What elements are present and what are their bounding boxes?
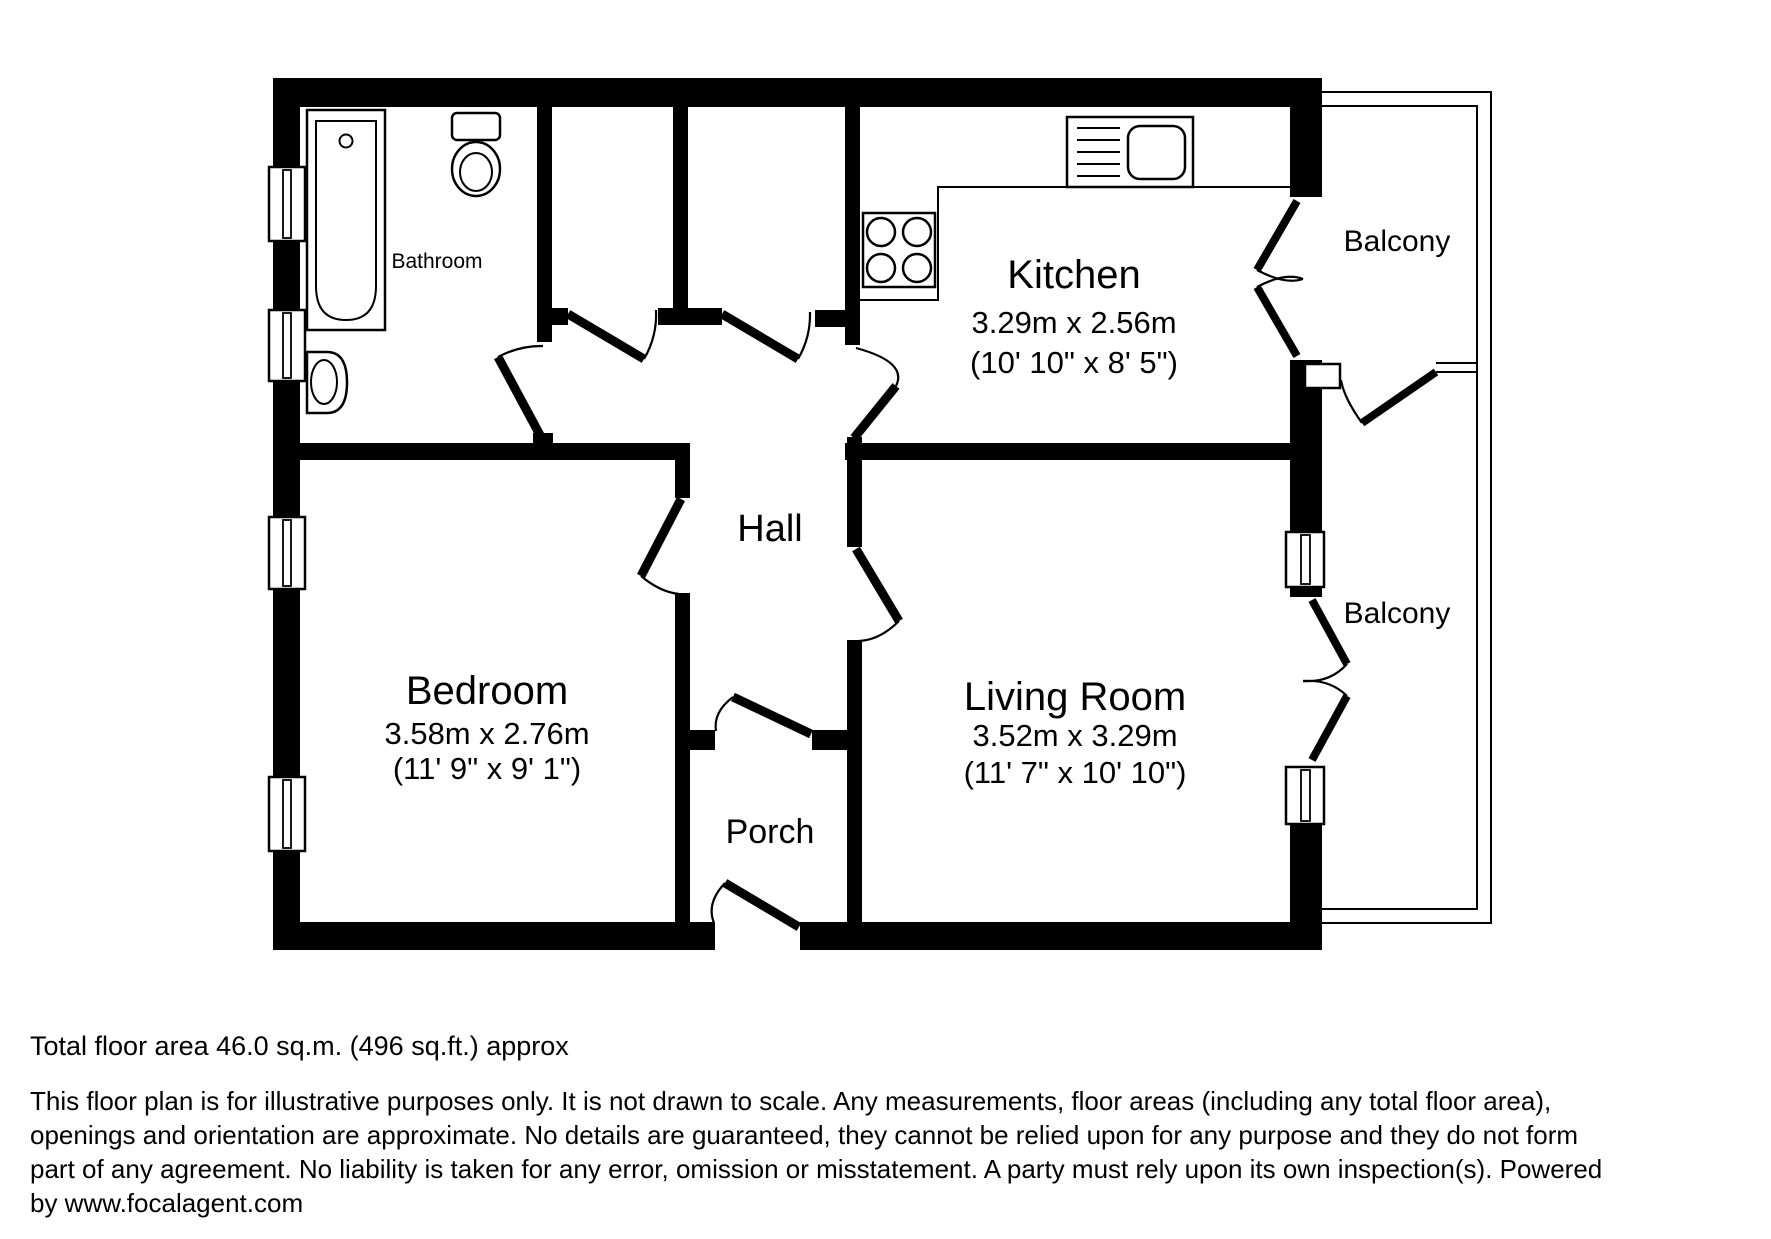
porch-entrance-door-arc	[712, 883, 725, 923]
bathroom-door-arc	[498, 346, 543, 357]
living-room-door-leaf	[856, 549, 899, 621]
window-icon	[1286, 767, 1324, 824]
door-swing-icon	[722, 312, 810, 359]
wall-bathroom-right-stub	[552, 308, 568, 325]
total-floor-area: Total floor area 46.0 sq.m. (496 sq.ft.)…	[30, 1031, 569, 1061]
kitchen-dims-imperial: (10' 10" x 8' 5")	[970, 345, 1178, 380]
balcony-divider-door-arc	[1341, 380, 1362, 423]
kitchen-balcony-door-leaf1	[1257, 201, 1297, 270]
bathroom-label: Bathroom	[391, 250, 482, 273]
bathtub-icon	[307, 110, 385, 330]
wall-closet-divider-stub	[658, 308, 722, 325]
bathroom-door-leaf	[498, 357, 540, 435]
living-room-door-arc	[859, 621, 899, 641]
closet2-door-leaf	[722, 314, 798, 359]
wall-closet-divider	[673, 107, 688, 308]
wall-hall-living-lower	[847, 640, 862, 922]
hall-porch-door-arc	[716, 697, 733, 731]
bedroom-dims-metric: 3.58m x 2.76m	[384, 716, 589, 751]
wall-outer-bottom-left	[273, 922, 715, 950]
disclaimer-line-3: part of any agreement. No liability is t…	[30, 1154, 1602, 1184]
door-swing-icon	[641, 499, 681, 594]
wall-kitchen-left	[845, 107, 860, 345]
door-swing-icon	[712, 883, 799, 927]
living-balcony-door-arc2	[1303, 681, 1347, 696]
kitchen-sink-icon	[1067, 117, 1193, 187]
french-door-icon	[1257, 201, 1303, 356]
window-icon	[269, 777, 305, 851]
hob-icon	[863, 213, 935, 287]
balcony-middle-label: Balcony	[1344, 597, 1451, 630]
wall-porch-top-left-stub	[690, 730, 715, 750]
wall-kitchen-left-stub	[815, 310, 845, 327]
kitchen-balcony-door-arc2	[1257, 277, 1303, 287]
door-swing-icon	[854, 348, 898, 438]
living-balcony-door-leaf1	[1312, 600, 1347, 664]
balcony-top-label: Balcony	[1344, 225, 1451, 258]
disclaimer-line-1: This floor plan is for illustrative purp…	[30, 1086, 1551, 1116]
basin-icon	[307, 352, 347, 413]
bedroom-label: Bedroom	[406, 669, 568, 713]
balcony-parapet-outer	[1322, 92, 1491, 923]
wall-porch-top-right-stub	[812, 730, 847, 750]
door-swing-icon	[716, 697, 811, 734]
wall-bathroom-right	[537, 107, 552, 342]
doors	[498, 201, 1347, 927]
hall-label: Hall	[737, 508, 802, 550]
disclaimer-line-4: by www.focalagent.com	[30, 1188, 303, 1218]
bedroom-door-leaf	[641, 499, 681, 576]
door-swing-icon	[498, 346, 543, 435]
hall-porch-door-leaf	[733, 697, 811, 734]
floorplan: Bathroom Kitchen 3.29m x 2.56m (10' 10" …	[0, 0, 1771, 1239]
wall-right-seg3	[1290, 587, 1322, 597]
closet1-door-arc	[644, 310, 656, 359]
wall-bedroom-right-upper-stub	[675, 460, 690, 498]
wall-outer-bottom-right	[800, 922, 1322, 950]
footer: Total floor area 46.0 sq.m. (496 sq.ft.)…	[30, 1031, 1602, 1218]
window-icon	[1286, 532, 1324, 587]
wall-bathroom-bedroom-divider	[300, 443, 690, 460]
porch-label: Porch	[726, 813, 815, 851]
wall-outer-top	[273, 78, 1322, 107]
window-icon	[269, 517, 305, 589]
door-swing-icon	[856, 549, 899, 641]
bedroom-door-arc	[641, 576, 679, 594]
porch-entrance-door-leaf	[725, 883, 799, 927]
balcony-parapet	[1305, 92, 1491, 923]
balcony-divider-door-leaf	[1362, 372, 1436, 423]
french-door-icon	[1303, 600, 1347, 760]
wall-bedroom-right-lower	[675, 593, 690, 922]
kitchen-balcony-door-leaf2	[1257, 287, 1297, 356]
disclaimer-line-2: openings and orientation are approximate…	[30, 1120, 1578, 1150]
kitchen-dims-metric: 3.29m x 2.56m	[971, 305, 1176, 340]
living-balcony-door-leaf2	[1312, 696, 1347, 760]
wall-right-seg1	[1290, 107, 1322, 197]
closet1-door-leaf	[568, 314, 644, 359]
kitchen-door-arc	[856, 348, 898, 386]
living-balcony-door-arc1	[1303, 664, 1347, 681]
door-swing-icon	[568, 310, 656, 359]
window-icon	[269, 167, 305, 241]
living-room-dims-imperial: (11' 7" x 10' 10")	[964, 755, 1187, 790]
toilet-icon	[452, 113, 500, 196]
kitchen-label: Kitchen	[1007, 253, 1140, 297]
balcony-door-post	[1305, 364, 1340, 388]
living-room-label: Living Room	[964, 675, 1186, 719]
window-icon	[269, 310, 305, 381]
living-room-dims-metric: 3.52m x 3.29m	[972, 718, 1177, 753]
closet2-door-arc	[798, 312, 810, 359]
wall-kitchen-living-divider	[845, 443, 1290, 460]
wall-right-seg4	[1290, 823, 1322, 922]
wall-hall-living-upper	[847, 437, 862, 547]
bedroom-dims-imperial: (11' 9" x 9' 1")	[393, 751, 581, 786]
kitchen-door-leaf	[854, 386, 896, 438]
